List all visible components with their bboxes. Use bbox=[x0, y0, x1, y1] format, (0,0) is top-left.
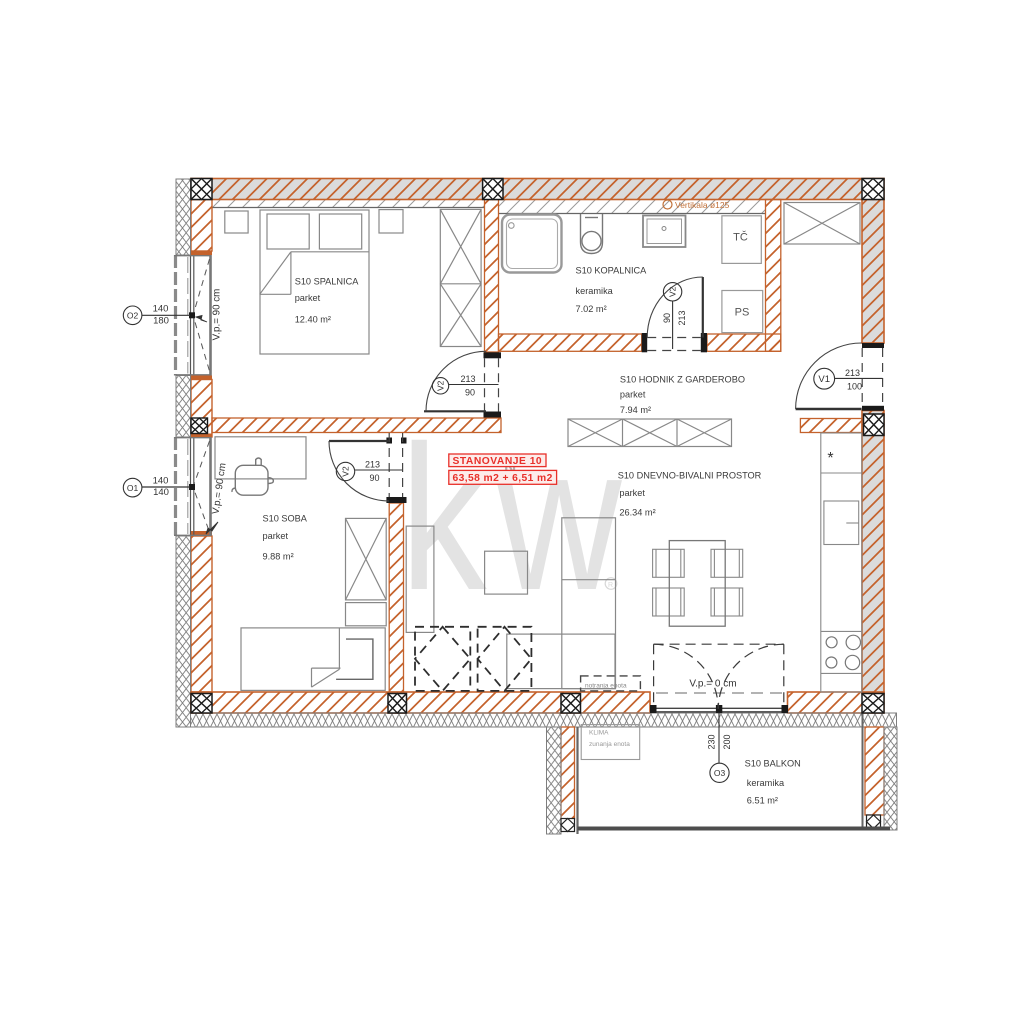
svg-text:KLIMA: KLIMA bbox=[589, 730, 609, 737]
svg-text:PS: PS bbox=[735, 307, 750, 319]
svg-text:213: 213 bbox=[845, 368, 860, 378]
svg-text:parket: parket bbox=[619, 488, 645, 498]
svg-text:140: 140 bbox=[153, 487, 169, 498]
svg-text:S10 HODNIK Z GARDEROBO: S10 HODNIK Z GARDEROBO bbox=[620, 375, 745, 385]
svg-text:notranja enota: notranja enota bbox=[585, 683, 627, 690]
svg-text:parket: parket bbox=[263, 531, 289, 541]
svg-text:Vertikala ø125: Vertikala ø125 bbox=[675, 200, 730, 210]
svg-text:kw: kw bbox=[400, 404, 632, 634]
svg-text:parket: parket bbox=[295, 293, 321, 303]
svg-text:keramika: keramika bbox=[576, 286, 614, 296]
svg-text:26.34 m²: 26.34 m² bbox=[619, 507, 655, 517]
svg-text:V2: V2 bbox=[341, 466, 351, 477]
svg-text:213: 213 bbox=[677, 310, 687, 325]
svg-text:63,58 m2 + 6,51 m2: 63,58 m2 + 6,51 m2 bbox=[453, 473, 553, 484]
svg-text:90: 90 bbox=[369, 473, 379, 483]
svg-text:12.40 m²: 12.40 m² bbox=[295, 315, 331, 325]
svg-text:V2: V2 bbox=[436, 380, 446, 391]
svg-text:9.88 m²: 9.88 m² bbox=[263, 552, 294, 562]
svg-text:100: 100 bbox=[847, 381, 862, 391]
svg-text:200: 200 bbox=[722, 734, 732, 749]
svg-text:V1: V1 bbox=[818, 374, 830, 385]
svg-text:S10 BALKON: S10 BALKON bbox=[745, 759, 801, 769]
svg-text:S10 SPALNICA: S10 SPALNICA bbox=[295, 277, 360, 287]
svg-text:180: 180 bbox=[153, 315, 169, 326]
svg-text:7.02 m²: 7.02 m² bbox=[576, 304, 607, 314]
svg-text:O1: O1 bbox=[127, 483, 139, 493]
svg-text:140: 140 bbox=[153, 304, 169, 315]
svg-text:STANOVANJE 10: STANOVANJE 10 bbox=[453, 456, 543, 467]
svg-text:zunanja enota: zunanja enota bbox=[589, 741, 630, 748]
svg-text:7.94 m²: 7.94 m² bbox=[620, 405, 651, 415]
svg-text:S10 DNEVNO-BIVALNI PROSTOR: S10 DNEVNO-BIVALNI PROSTOR bbox=[618, 470, 762, 480]
svg-text:O2: O2 bbox=[127, 311, 139, 321]
svg-text:213: 213 bbox=[365, 459, 380, 469]
svg-text:R: R bbox=[608, 582, 613, 589]
svg-text:90: 90 bbox=[465, 387, 475, 397]
svg-text:keramika: keramika bbox=[747, 778, 785, 788]
svg-text:O3: O3 bbox=[714, 768, 726, 778]
svg-text:TČ: TČ bbox=[733, 231, 748, 244]
svg-text:V.p.= 90 cm: V.p.= 90 cm bbox=[212, 289, 223, 341]
svg-text:S10 KOPALNICA: S10 KOPALNICA bbox=[576, 266, 648, 276]
svg-text:230: 230 bbox=[707, 734, 717, 749]
svg-text:S10 SOBA: S10 SOBA bbox=[263, 514, 308, 524]
svg-text:213: 213 bbox=[460, 374, 475, 384]
svg-text:V.p.= 0 cm: V.p.= 0 cm bbox=[689, 679, 736, 690]
svg-text:6.51 m²: 6.51 m² bbox=[747, 796, 778, 806]
svg-text:90: 90 bbox=[662, 313, 672, 323]
svg-text:parket: parket bbox=[620, 390, 646, 400]
svg-text:140: 140 bbox=[153, 475, 169, 486]
svg-text:*: * bbox=[827, 450, 833, 467]
svg-text:V2: V2 bbox=[668, 286, 678, 297]
